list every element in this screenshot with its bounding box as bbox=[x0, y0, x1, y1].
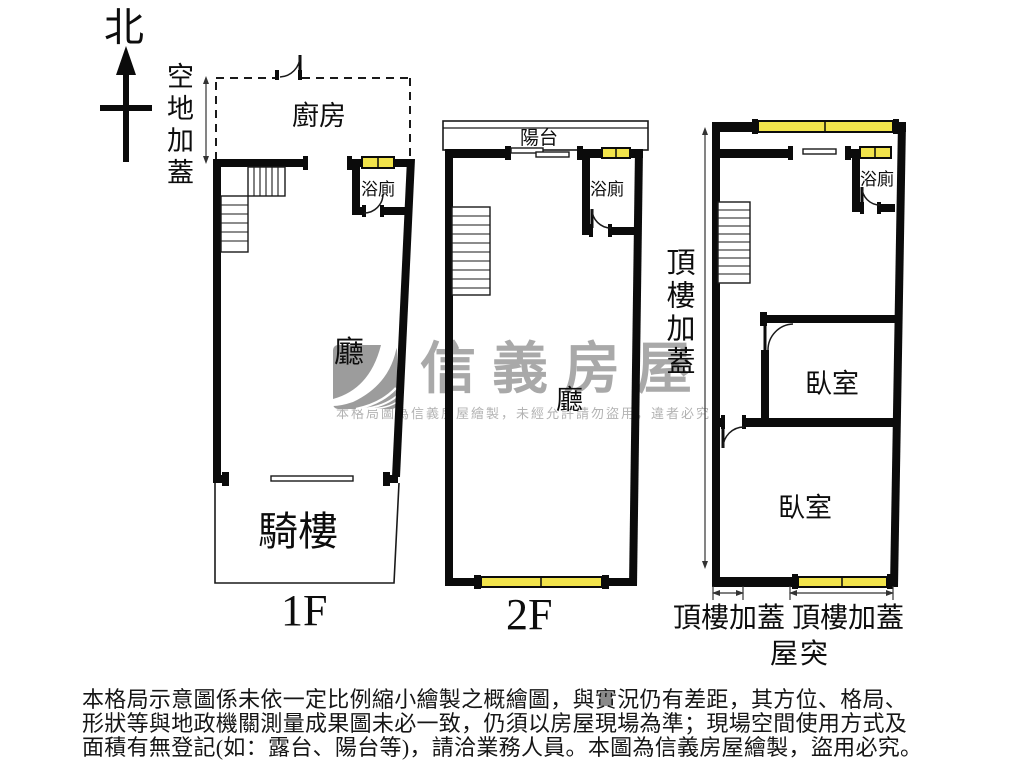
arcade-label: 騎樓 bbox=[258, 512, 338, 552]
open-space-annotation: 空地加蓋 bbox=[164, 62, 191, 190]
floor-label-2f: 2F bbox=[506, 593, 552, 637]
living-label-1f: 廳 bbox=[334, 338, 364, 368]
stairs-2f bbox=[452, 207, 490, 295]
bedroom-lower-label: 臥室 bbox=[778, 495, 832, 522]
floor-plan-1f bbox=[203, 55, 415, 583]
disclaimer-line-1: 本格局示意圖係未依一定比例縮小繪製之概繪圖，與實況仍有差距，其方位、格局、 bbox=[82, 689, 907, 711]
dim-label-rooftop-left: 頂樓加蓋 bbox=[673, 605, 785, 633]
rooftop-dimension-arrow bbox=[702, 127, 708, 569]
living-label-2f: 廳 bbox=[556, 387, 583, 414]
balcony-label: 陽台 bbox=[520, 129, 558, 148]
bedroom-lower-walls bbox=[712, 415, 894, 448]
dim-label-rooftop-right: 頂樓加蓋 bbox=[792, 605, 904, 633]
disclaimer-line-3: 面積有無登記(如：露台、陽台等)，請洽業務人員。本圖為信義房屋繪製，盜用必究。 bbox=[82, 737, 922, 759]
bath-label-2f: 浴廁 bbox=[590, 181, 624, 198]
bedroom-upper-label: 臥室 bbox=[805, 371, 859, 398]
compass-arrow bbox=[100, 46, 152, 162]
dimension-arrow-bottom-right bbox=[789, 586, 894, 600]
roof-protrusion-label: 屋突 bbox=[770, 641, 830, 669]
floor-plan-drawing bbox=[0, 0, 1024, 768]
bedroom-upper-walls bbox=[760, 312, 896, 420]
stairs-3f bbox=[718, 202, 750, 283]
disclaimer-line-2: 形狀等與地政機關測量成果圖未必一致，仍須以房屋現場為準；現場空間使用方式及 bbox=[82, 713, 907, 735]
dimension-arrow-bottom-left bbox=[712, 586, 744, 600]
north-label: 北 bbox=[104, 8, 144, 48]
stairs-1f bbox=[221, 167, 285, 252]
kitchen-label: 廚房 bbox=[292, 103, 346, 130]
bath-label-1f: 浴廁 bbox=[361, 181, 395, 198]
open-space-dimension-arrow bbox=[203, 76, 209, 164]
floor-plan-3f bbox=[702, 119, 906, 600]
entrance-sliding-door-1f bbox=[271, 476, 353, 481]
floor-label-1f: 1F bbox=[281, 589, 327, 633]
rooftop-annotation: 頂樓加蓋 bbox=[663, 247, 692, 379]
kitchen-door bbox=[275, 55, 302, 80]
bath-label-3f: 浴廁 bbox=[860, 171, 894, 188]
